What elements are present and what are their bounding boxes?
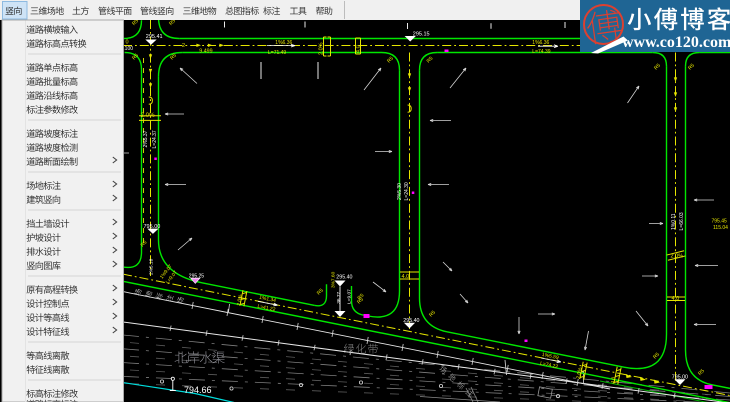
svg-text:L=66.03: L=66.03 bbox=[679, 212, 685, 230]
svg-text:1%6.36: 1%6.36 bbox=[532, 40, 549, 46]
svg-text:L=9.07: L=9.07 bbox=[347, 289, 353, 304]
svg-text:1%6.36: 1%6.36 bbox=[275, 40, 292, 46]
svg-text:L=24.30: L=24.30 bbox=[404, 182, 410, 200]
svg-text:2%5.37: 2%5.37 bbox=[143, 130, 149, 147]
svg-text:2%5.18: 2%5.18 bbox=[149, 258, 155, 275]
svg-text:2%5.30: 2%5.30 bbox=[397, 183, 403, 200]
svg-text:795.45: 795.45 bbox=[712, 219, 728, 225]
svg-text:295.40: 295.40 bbox=[336, 275, 352, 281]
svg-text:L=71.49: L=71.49 bbox=[268, 50, 286, 56]
svg-text:4.0: 4.0 bbox=[672, 296, 680, 302]
svg-text:2.0%: 2.0% bbox=[319, 42, 325, 55]
svg-text:0: 0 bbox=[126, 39, 129, 45]
svg-text:9.499: 9.499 bbox=[199, 48, 212, 54]
svg-text:4.0: 4.0 bbox=[356, 45, 362, 53]
svg-text:36.77: 36.77 bbox=[336, 291, 342, 303]
svg-text:www.co120.com: www.co120.com bbox=[622, 34, 730, 51]
svg-text:4.0: 4.0 bbox=[402, 274, 410, 280]
svg-text:2: 2 bbox=[182, 43, 185, 49]
svg-text:2.0%: 2.0% bbox=[141, 112, 156, 119]
svg-text:794.66: 794.66 bbox=[184, 385, 212, 395]
svg-text:1%0.11: 1%0.11 bbox=[671, 213, 677, 230]
svg-text:L=74.39: L=74.39 bbox=[532, 49, 550, 55]
svg-text:295.41: 295.41 bbox=[146, 34, 163, 40]
svg-text:2.0%: 2.0% bbox=[671, 254, 684, 260]
svg-text:115.04: 115.04 bbox=[713, 225, 728, 231]
svg-text:295.15: 295.15 bbox=[413, 32, 430, 38]
svg-text:3%7.60: 3%7.60 bbox=[331, 271, 337, 288]
svg-text:L=24.37: L=24.37 bbox=[152, 130, 158, 148]
